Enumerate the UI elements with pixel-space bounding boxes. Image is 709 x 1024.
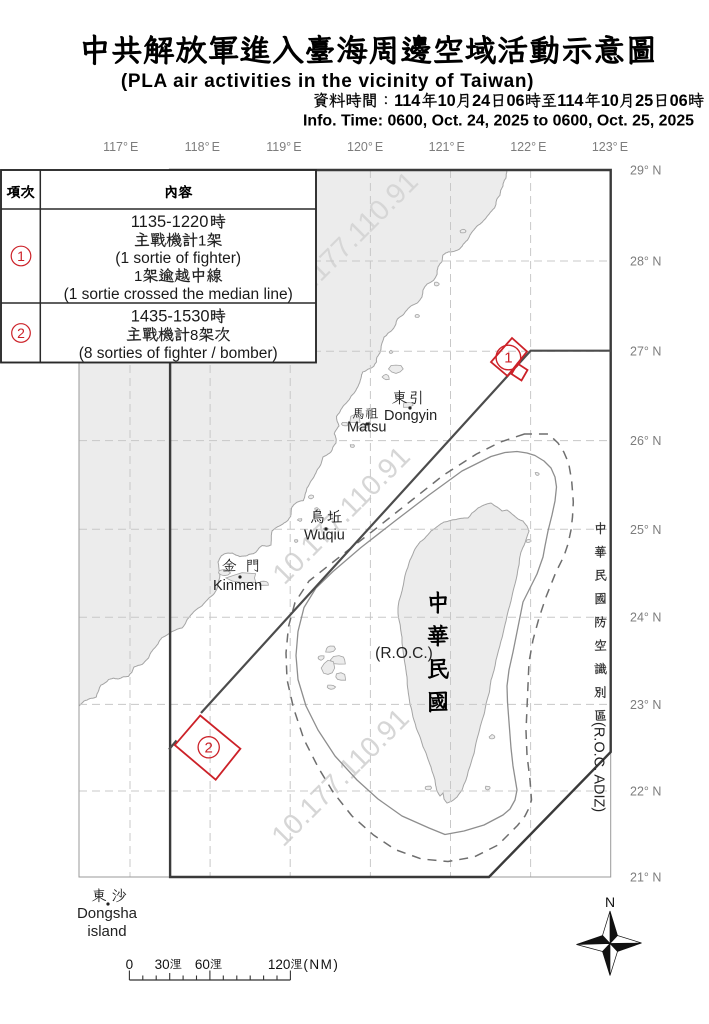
svg-text:24: 24 — [472, 92, 490, 110]
svg-text:1: 1 — [17, 248, 25, 264]
svg-text:25: 25 — [635, 92, 653, 110]
svg-text:114: 114 — [394, 92, 420, 110]
svg-text:27° N: 27° N — [630, 345, 661, 359]
svg-text:1435-1530: 1435-1530 — [131, 308, 210, 326]
svg-text:8: 8 — [190, 327, 198, 344]
svg-text:22° N: 22° N — [630, 785, 661, 799]
svg-text:24° N: 24° N — [630, 611, 661, 625]
svg-text:Kinmen: Kinmen — [213, 578, 262, 594]
svg-text:121°: 121° — [429, 140, 455, 154]
svg-text:(PLA air activities in the vic: (PLA air activities in the vicinity of T… — [121, 71, 534, 92]
svg-text:28° N: 28° N — [630, 255, 661, 269]
svg-text:120°: 120° — [347, 140, 373, 154]
svg-text:(8 sorties of fighter / bomber: (8 sorties of fighter / bomber) — [79, 345, 278, 362]
svg-text:E: E — [212, 140, 220, 154]
svg-text:E: E — [293, 140, 301, 154]
svg-text:114: 114 — [557, 92, 583, 110]
svg-text:Dongyin: Dongyin — [384, 408, 437, 424]
svg-text:21° N: 21° N — [630, 871, 661, 885]
svg-text:117°: 117° — [103, 140, 128, 154]
svg-text:2: 2 — [17, 325, 25, 341]
svg-text:Wuqiu: Wuqiu — [304, 528, 345, 544]
svg-text:0: 0 — [126, 957, 134, 972]
svg-text:118°: 118° — [185, 140, 210, 154]
svg-text:E: E — [130, 140, 138, 154]
svg-text:06: 06 — [507, 92, 525, 110]
svg-text:(R.O.C. ADIZ): (R.O.C. ADIZ) — [591, 722, 607, 812]
svg-text:E: E — [620, 140, 628, 154]
svg-text:120: 120 — [268, 957, 291, 972]
svg-text:60: 60 — [195, 957, 210, 972]
svg-text:island: island — [87, 923, 126, 940]
svg-text:Matsu: Matsu — [347, 420, 387, 436]
svg-text:23° N: 23° N — [630, 698, 661, 712]
svg-text:30: 30 — [155, 957, 170, 972]
svg-text:2: 2 — [205, 739, 213, 756]
svg-text:123°: 123° — [592, 140, 618, 154]
svg-text:(R.O.C.): (R.O.C.) — [375, 645, 433, 662]
svg-text:26° N: 26° N — [630, 434, 661, 448]
svg-text:122°: 122° — [510, 140, 536, 154]
svg-text:10: 10 — [601, 92, 619, 110]
svg-text:1: 1 — [504, 349, 512, 366]
svg-text:10: 10 — [438, 92, 456, 110]
svg-text:E: E — [538, 140, 546, 154]
svg-text:N: N — [605, 894, 615, 910]
svg-text:E: E — [375, 140, 383, 154]
svg-text:1135-1220: 1135-1220 — [131, 213, 209, 231]
svg-text:119°: 119° — [266, 140, 291, 154]
svg-text:(1 sortie crossed the median l: (1 sortie crossed the median line) — [64, 286, 293, 303]
svg-text:1: 1 — [134, 268, 142, 285]
svg-text:(1 sortie of fighter): (1 sortie of fighter) — [115, 250, 241, 267]
svg-text:Info. Time: 0600, Oct. 24, 202: Info. Time: 0600, Oct. 24, 2025 to 0600,… — [303, 113, 694, 130]
svg-text:E: E — [457, 140, 465, 154]
svg-text:(NM): (NM) — [303, 957, 339, 972]
svg-text:25° N: 25° N — [630, 523, 661, 537]
svg-text:1: 1 — [198, 233, 206, 250]
svg-text:Dongsha: Dongsha — [77, 905, 138, 922]
svg-text:06: 06 — [670, 92, 688, 110]
svg-text:29° N: 29° N — [630, 164, 661, 178]
